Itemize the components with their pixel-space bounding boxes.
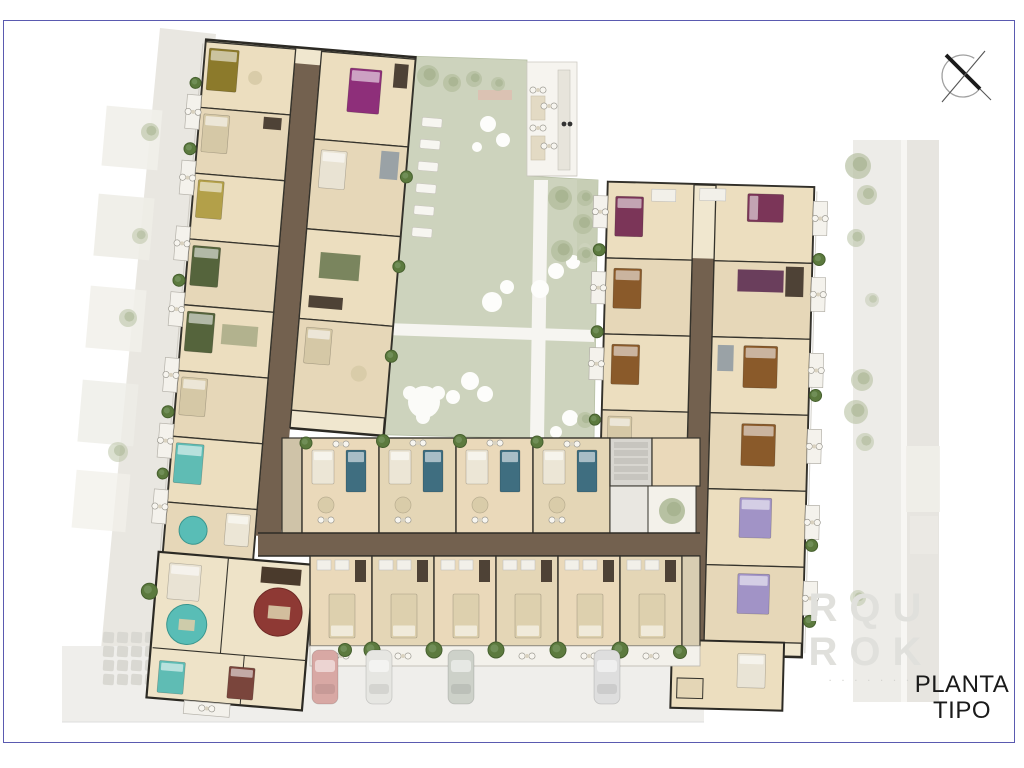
bottom-wing xyxy=(258,435,700,667)
plan-title: PLANTA TIPO xyxy=(894,672,1024,724)
floor-plan-page: RQU ROK · · · · · · · PLANTA TIPO xyxy=(0,0,1024,768)
site-plan-canvas xyxy=(0,0,1024,768)
plan-title-line-2: TIPO xyxy=(894,698,1024,724)
left-bottom-block xyxy=(131,551,314,724)
north-compass-icon xyxy=(930,42,1000,112)
plan-title-line-1: PLANTA xyxy=(894,672,1024,698)
